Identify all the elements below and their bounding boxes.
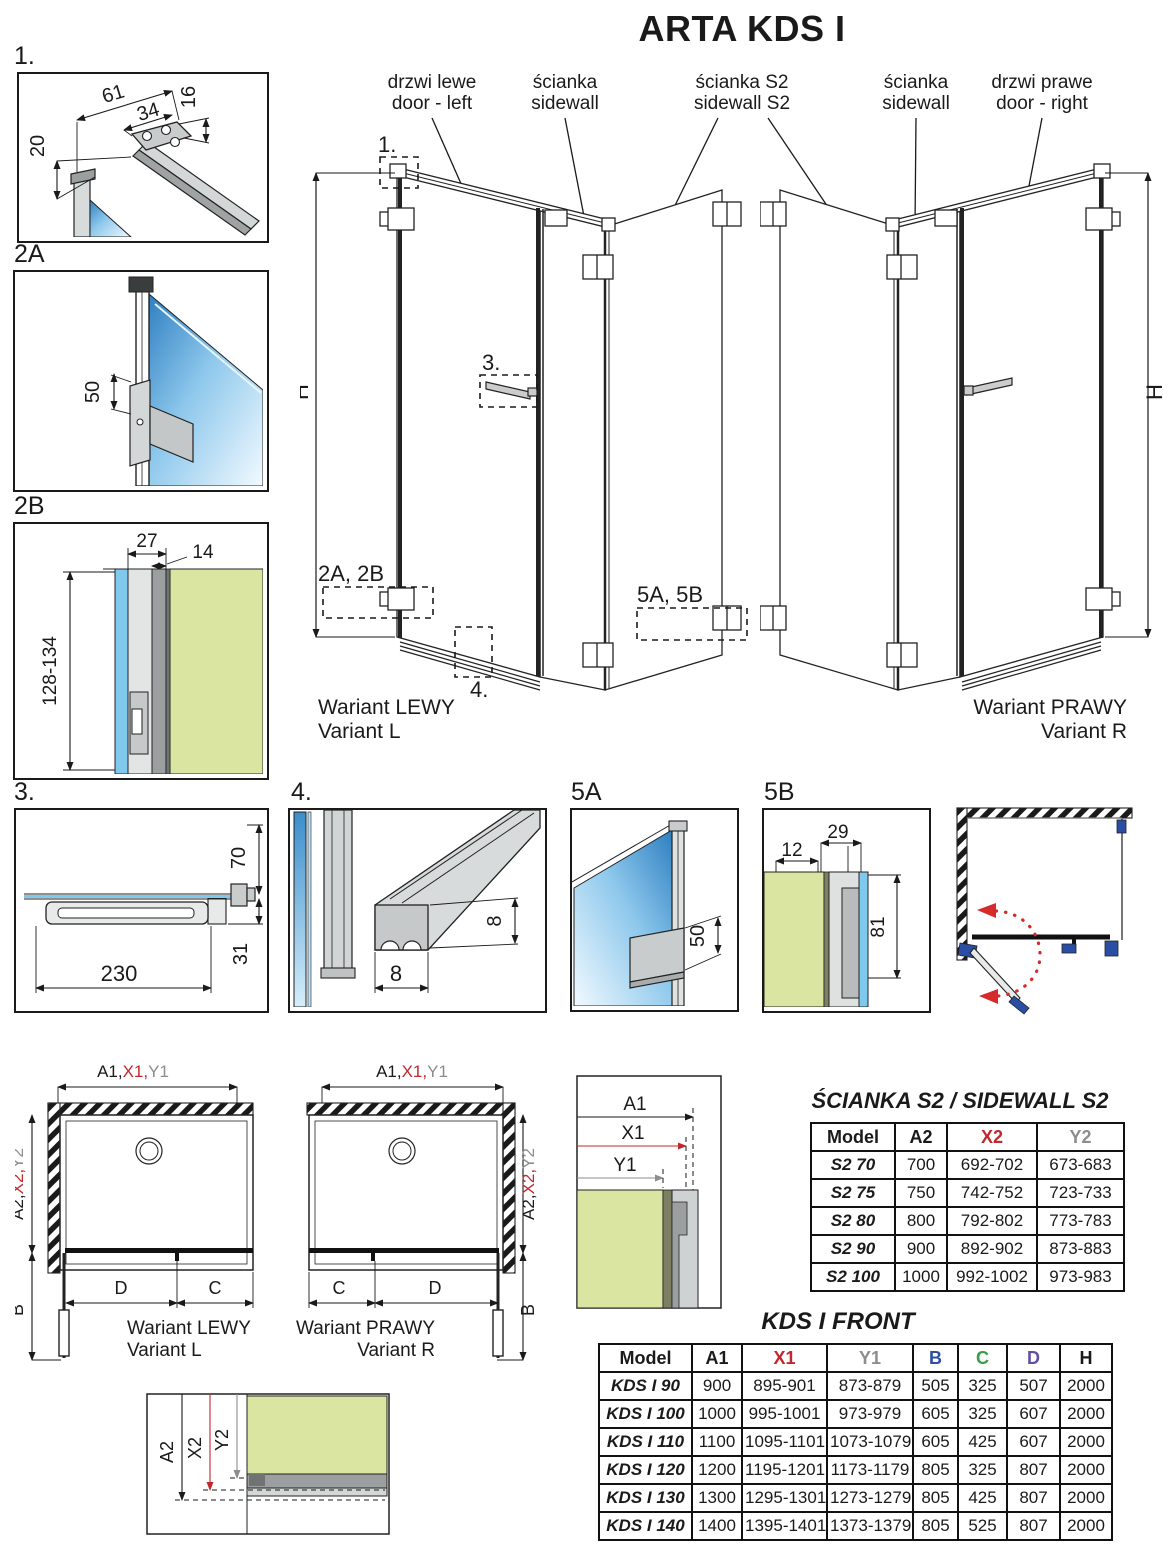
dim-34: 34	[134, 98, 162, 126]
column-header: C	[958, 1344, 1007, 1372]
model-cell: KDS I 140	[599, 1512, 692, 1540]
value-cell: 805	[913, 1512, 958, 1540]
value-cell: 1273-1279	[827, 1484, 913, 1512]
detail-5b-drawing: 12 29 81	[764, 810, 925, 1007]
value-cell: 742-752	[947, 1179, 1037, 1207]
value-cell: 1095-1101	[742, 1428, 827, 1456]
table-row: KDS I 90900895-901873-8795053255072000	[599, 1372, 1112, 1400]
technical-sheet: ARTA KDS I drzwi lewe door - left ściank…	[0, 0, 1174, 1560]
table-row: S2 90900892-902873-883	[811, 1235, 1124, 1263]
value-cell: 995-1001	[742, 1400, 827, 1428]
dim-h-right: H	[1142, 384, 1167, 400]
value-cell: 892-902	[947, 1235, 1037, 1263]
column-header: D	[1007, 1344, 1060, 1372]
dim-61: 61	[99, 80, 127, 108]
value-cell: 325	[958, 1372, 1007, 1400]
section-a1: A1	[623, 1094, 646, 1115]
value-cell: 2000	[1060, 1484, 1112, 1512]
plan-right-dim-d: D	[429, 1278, 442, 1298]
value-cell: 325	[958, 1400, 1007, 1428]
value-cell: 895-901	[742, 1372, 827, 1400]
section-x1: X1	[621, 1123, 644, 1144]
callout-2ab: 2A, 2B	[318, 561, 384, 586]
model-cell: S2 90	[811, 1235, 895, 1263]
value-cell: 2000	[1060, 1456, 1112, 1484]
label-door-right-pl: drzwi prawe	[972, 72, 1112, 93]
value-cell: 1400	[692, 1512, 742, 1540]
shower-tray	[60, 1115, 253, 1270]
table-row: KDS I 12012001195-12011173-1179805325807…	[599, 1456, 1112, 1484]
label-door-left-pl: drzwi lewe	[362, 72, 502, 93]
callout-1: 1.	[378, 132, 396, 157]
value-cell: 900	[692, 1372, 742, 1400]
plan-right-side-dim: A2,X2,Y2	[519, 1148, 538, 1220]
value-cell: 2000	[1060, 1428, 1112, 1456]
variant-left-pl: Wariant LEWY	[318, 696, 538, 720]
door-swing-plan	[950, 800, 1138, 1018]
label-sidewall-left-pl: ścianka	[495, 72, 635, 93]
value-cell: 2000	[1060, 1400, 1112, 1428]
main-drawing-left-variant: H 1. 3. 2A, 2B 4. 5A, 5B	[300, 130, 760, 762]
value-cell: 692-702	[947, 1151, 1037, 1179]
dim-81: 81	[868, 916, 889, 937]
model-cell: KDS I 120	[599, 1456, 692, 1484]
plan-right-dim-c: C	[333, 1278, 346, 1298]
plan-left-dim-d: D	[115, 1278, 128, 1298]
model-cell: S2 80	[811, 1207, 895, 1235]
plan-right-top-dim: A1,X1,Y1	[376, 1062, 448, 1081]
detail-3-box: 70 31 230	[14, 808, 269, 1013]
front-table-title: KDS I FRONT	[598, 1308, 1078, 1336]
dim-14: 14	[192, 542, 214, 563]
value-cell: 750	[895, 1179, 947, 1207]
dim-8-v: 8	[484, 915, 506, 926]
value-cell: 1373-1379	[827, 1512, 913, 1540]
page-title: ARTA KDS I	[492, 8, 992, 50]
section-y1: Y1	[613, 1155, 636, 1176]
value-cell: 1295-1301	[742, 1484, 827, 1512]
value-cell: 1200	[692, 1456, 742, 1484]
value-cell: 2000	[1060, 1372, 1112, 1400]
model-cell: KDS I 110	[599, 1428, 692, 1456]
variant-left-plan: Wariant LEWY Variant L	[127, 1318, 287, 1362]
model-cell: KDS I 130	[599, 1484, 692, 1512]
value-cell: 607	[1007, 1400, 1060, 1428]
detail-2a-drawing: 50	[15, 272, 263, 486]
callout-5ab: 5A, 5B	[637, 582, 703, 607]
value-cell: 992-1002	[947, 1263, 1037, 1291]
wall-bracket-icon	[1117, 820, 1126, 833]
value-cell: 723-733	[1037, 1179, 1124, 1207]
s2-table-title: ŚCIANKA S2 / SIDEWALL S2	[780, 1088, 1140, 1114]
detail-1-drawing: 61 34 16 20	[19, 74, 263, 237]
table-row: S2 80800792-802773-783	[811, 1207, 1124, 1235]
detail-2a-box: 50	[13, 270, 269, 492]
detail-2b-drawing: 27 14 128-134	[15, 524, 263, 774]
label-sidewall-right-pl: ścianka	[846, 72, 986, 93]
detail-5b-label: 5B	[764, 778, 795, 807]
s2-sidewall-table: ModelA2X2Y2S2 70700692-702673-683S2 7575…	[810, 1122, 1125, 1292]
value-cell: 505	[913, 1372, 958, 1400]
value-cell: 673-683	[1037, 1151, 1124, 1179]
variant-right-en: Variant R	[905, 720, 1127, 744]
value-cell: 605	[913, 1400, 958, 1428]
detail-5a-drawing: 50	[572, 810, 733, 1006]
detail-4-box: 8 8	[288, 808, 547, 1013]
value-cell: 325	[958, 1456, 1007, 1484]
value-cell: 1173-1179	[827, 1456, 913, 1484]
column-header: X1	[742, 1344, 827, 1372]
variant-left-plan-en: Variant L	[127, 1340, 287, 1362]
detail-2b-label: 2B	[14, 492, 45, 521]
table-row: S2 1001000992-1002973-983	[811, 1263, 1124, 1291]
value-cell: 807	[1007, 1484, 1060, 1512]
value-cell: 973-979	[827, 1400, 913, 1428]
value-cell: 800	[895, 1207, 947, 1235]
dim-16: 16	[178, 86, 200, 108]
column-header: Model	[811, 1123, 895, 1151]
plan-left-dim-c: C	[209, 1278, 222, 1298]
section-detail-side: A2 X2 Y2	[145, 1390, 395, 1540]
variant-left-plan-pl: Wariant LEWY	[127, 1318, 287, 1340]
column-header: Y1	[827, 1344, 913, 1372]
header-row: ModelA2X2Y2	[811, 1123, 1124, 1151]
dim-20: 20	[27, 135, 49, 157]
value-cell: 525	[958, 1512, 1007, 1540]
detail-1-label: 1.	[14, 42, 35, 71]
column-header: B	[913, 1344, 958, 1372]
column-header: A1	[692, 1344, 742, 1372]
detail-5a-label: 5A	[571, 778, 602, 807]
detail-3-drawing: 70 31 230	[16, 810, 263, 1007]
section-a2: A2	[157, 1441, 177, 1463]
variant-right-plan-en: Variant R	[283, 1340, 435, 1362]
dim-50-hinge: 50	[82, 381, 104, 403]
value-cell: 805	[913, 1484, 958, 1512]
table-row: KDS I 11011001095-11011073-1079605425607…	[599, 1428, 1112, 1456]
plan-left-side-dim: A2,X2,Y2	[15, 1148, 27, 1220]
column-header: Y2	[1037, 1123, 1124, 1151]
value-cell: 900	[895, 1235, 947, 1263]
detail-2b-box: 27 14 128-134	[13, 522, 269, 780]
section-x2: X2	[185, 1437, 205, 1459]
detail-4-drawing: 8 8	[290, 810, 541, 1007]
value-cell: 792-802	[947, 1207, 1037, 1235]
plan-left-dim-b: B	[15, 1304, 27, 1316]
value-cell: 1300	[692, 1484, 742, 1512]
value-cell: 1395-1401	[742, 1512, 827, 1540]
header-row: ModelA1X1Y1BCDH	[599, 1344, 1112, 1372]
value-cell: 700	[895, 1151, 947, 1179]
value-cell: 973-983	[1037, 1263, 1124, 1291]
table-row: KDS I 13013001295-13011273-1279805425807…	[599, 1484, 1112, 1512]
section-detail-front: A1 X1 Y1	[575, 1070, 723, 1312]
main-drawing-right-variant: H	[760, 130, 1174, 762]
column-header: Model	[599, 1344, 692, 1372]
dim-50-clamp: 50	[687, 925, 709, 947]
detail-5b-box: 12 29 81	[762, 808, 931, 1013]
table-row: KDS I 1001000995-1001973-979605325607200…	[599, 1400, 1112, 1428]
dim-31: 31	[230, 943, 252, 965]
value-cell: 607	[1007, 1428, 1060, 1456]
variant-right-3d: Wariant PRAWY Variant R	[905, 696, 1127, 744]
value-cell: 807	[1007, 1512, 1060, 1540]
value-cell: 873-883	[1037, 1235, 1124, 1263]
dim-8-h: 8	[390, 961, 402, 986]
detail-2a-label: 2A	[14, 240, 45, 269]
variant-left-3d: Wariant LEWY Variant L	[318, 696, 538, 744]
dim-230: 230	[101, 961, 138, 986]
model-cell: KDS I 100	[599, 1400, 692, 1428]
variant-right-pl: Wariant PRAWY	[905, 696, 1127, 720]
column-header: A2	[895, 1123, 947, 1151]
value-cell: 2000	[1060, 1512, 1112, 1540]
value-cell: 425	[958, 1428, 1007, 1456]
variant-right-plan-pl: Wariant PRAWY	[283, 1318, 435, 1340]
column-header: X2	[947, 1123, 1037, 1151]
value-cell: 1100	[692, 1428, 742, 1456]
value-cell: 425	[958, 1484, 1007, 1512]
dim-70: 70	[228, 847, 250, 869]
column-header: H	[1060, 1344, 1112, 1372]
variant-right-plan: Wariant PRAWY Variant R	[283, 1318, 435, 1362]
dim-12: 12	[781, 840, 802, 861]
detail-1-box: 61 34 16 20	[17, 72, 269, 243]
value-cell: 507	[1007, 1372, 1060, 1400]
value-cell: 873-879	[827, 1372, 913, 1400]
dim-h-left: H	[300, 384, 313, 400]
plan-right-dim-b: B	[518, 1304, 538, 1316]
dim-128-134: 128-134	[40, 636, 61, 706]
value-cell: 807	[1007, 1456, 1060, 1484]
table-row: S2 75750742-752723-733	[811, 1179, 1124, 1207]
detail-5a-box: 50	[570, 808, 739, 1012]
value-cell: 805	[913, 1456, 958, 1484]
model-cell: S2 100	[811, 1263, 895, 1291]
value-cell: 1195-1201	[742, 1456, 827, 1484]
callout-3: 3.	[482, 350, 500, 375]
value-cell: 773-783	[1037, 1207, 1124, 1235]
detail-4-label: 4.	[291, 778, 312, 807]
value-cell: 1000	[692, 1400, 742, 1428]
kds-front-table: ModelA1X1Y1BCDHKDS I 90900895-901873-879…	[598, 1343, 1113, 1541]
variant-left-en: Variant L	[318, 720, 538, 744]
table-row: S2 70700692-702673-683	[811, 1151, 1124, 1179]
detail-3-label: 3.	[14, 778, 35, 807]
model-cell: KDS I 90	[599, 1372, 692, 1400]
value-cell: 1073-1079	[827, 1428, 913, 1456]
table-row: KDS I 14014001395-14011373-1379805525807…	[599, 1512, 1112, 1540]
label-sidewall-s2-pl: ścianka S2	[662, 72, 822, 93]
model-cell: S2 70	[811, 1151, 895, 1179]
model-cell: S2 75	[811, 1179, 895, 1207]
dim-29: 29	[827, 822, 848, 843]
value-cell: 1000	[895, 1263, 947, 1291]
dim-27: 27	[136, 531, 157, 552]
section-y2: Y2	[212, 1429, 232, 1451]
plan-left-top-dim: A1,X1,Y1	[97, 1062, 169, 1081]
value-cell: 605	[913, 1428, 958, 1456]
